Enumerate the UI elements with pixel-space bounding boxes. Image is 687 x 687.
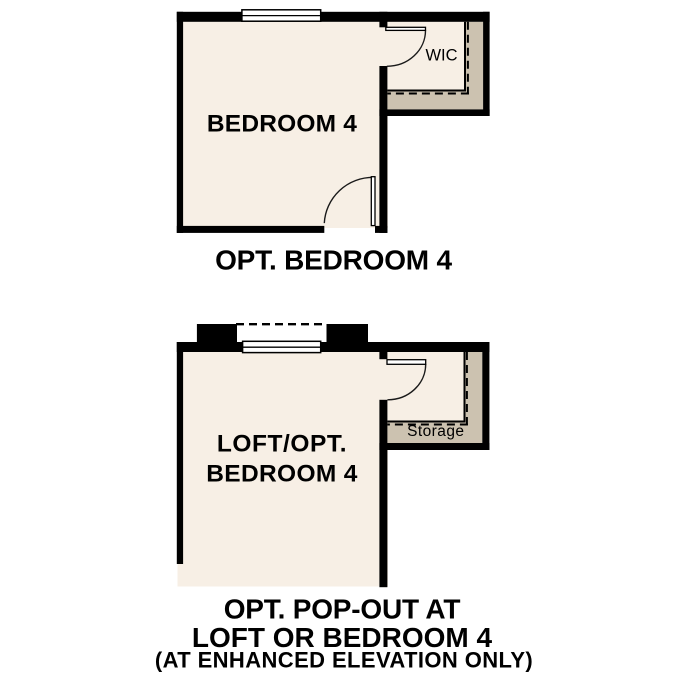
svg-text:Storage: Storage	[407, 423, 464, 440]
svg-text:OPT. BEDROOM 4: OPT. BEDROOM 4	[215, 245, 452, 276]
svg-text:BEDROOM 4: BEDROOM 4	[207, 110, 357, 137]
svg-text:BEDROOM 4: BEDROOM 4	[206, 461, 358, 488]
svg-text:OPT. POP-OUT AT: OPT. POP-OUT AT	[224, 594, 461, 625]
svg-text:LOFT/OPT.: LOFT/OPT.	[217, 431, 347, 458]
svg-text:WIC: WIC	[425, 47, 457, 65]
svg-text:(AT ENHANCED ELEVATION ONLY): (AT ENHANCED ELEVATION ONLY)	[155, 648, 533, 673]
